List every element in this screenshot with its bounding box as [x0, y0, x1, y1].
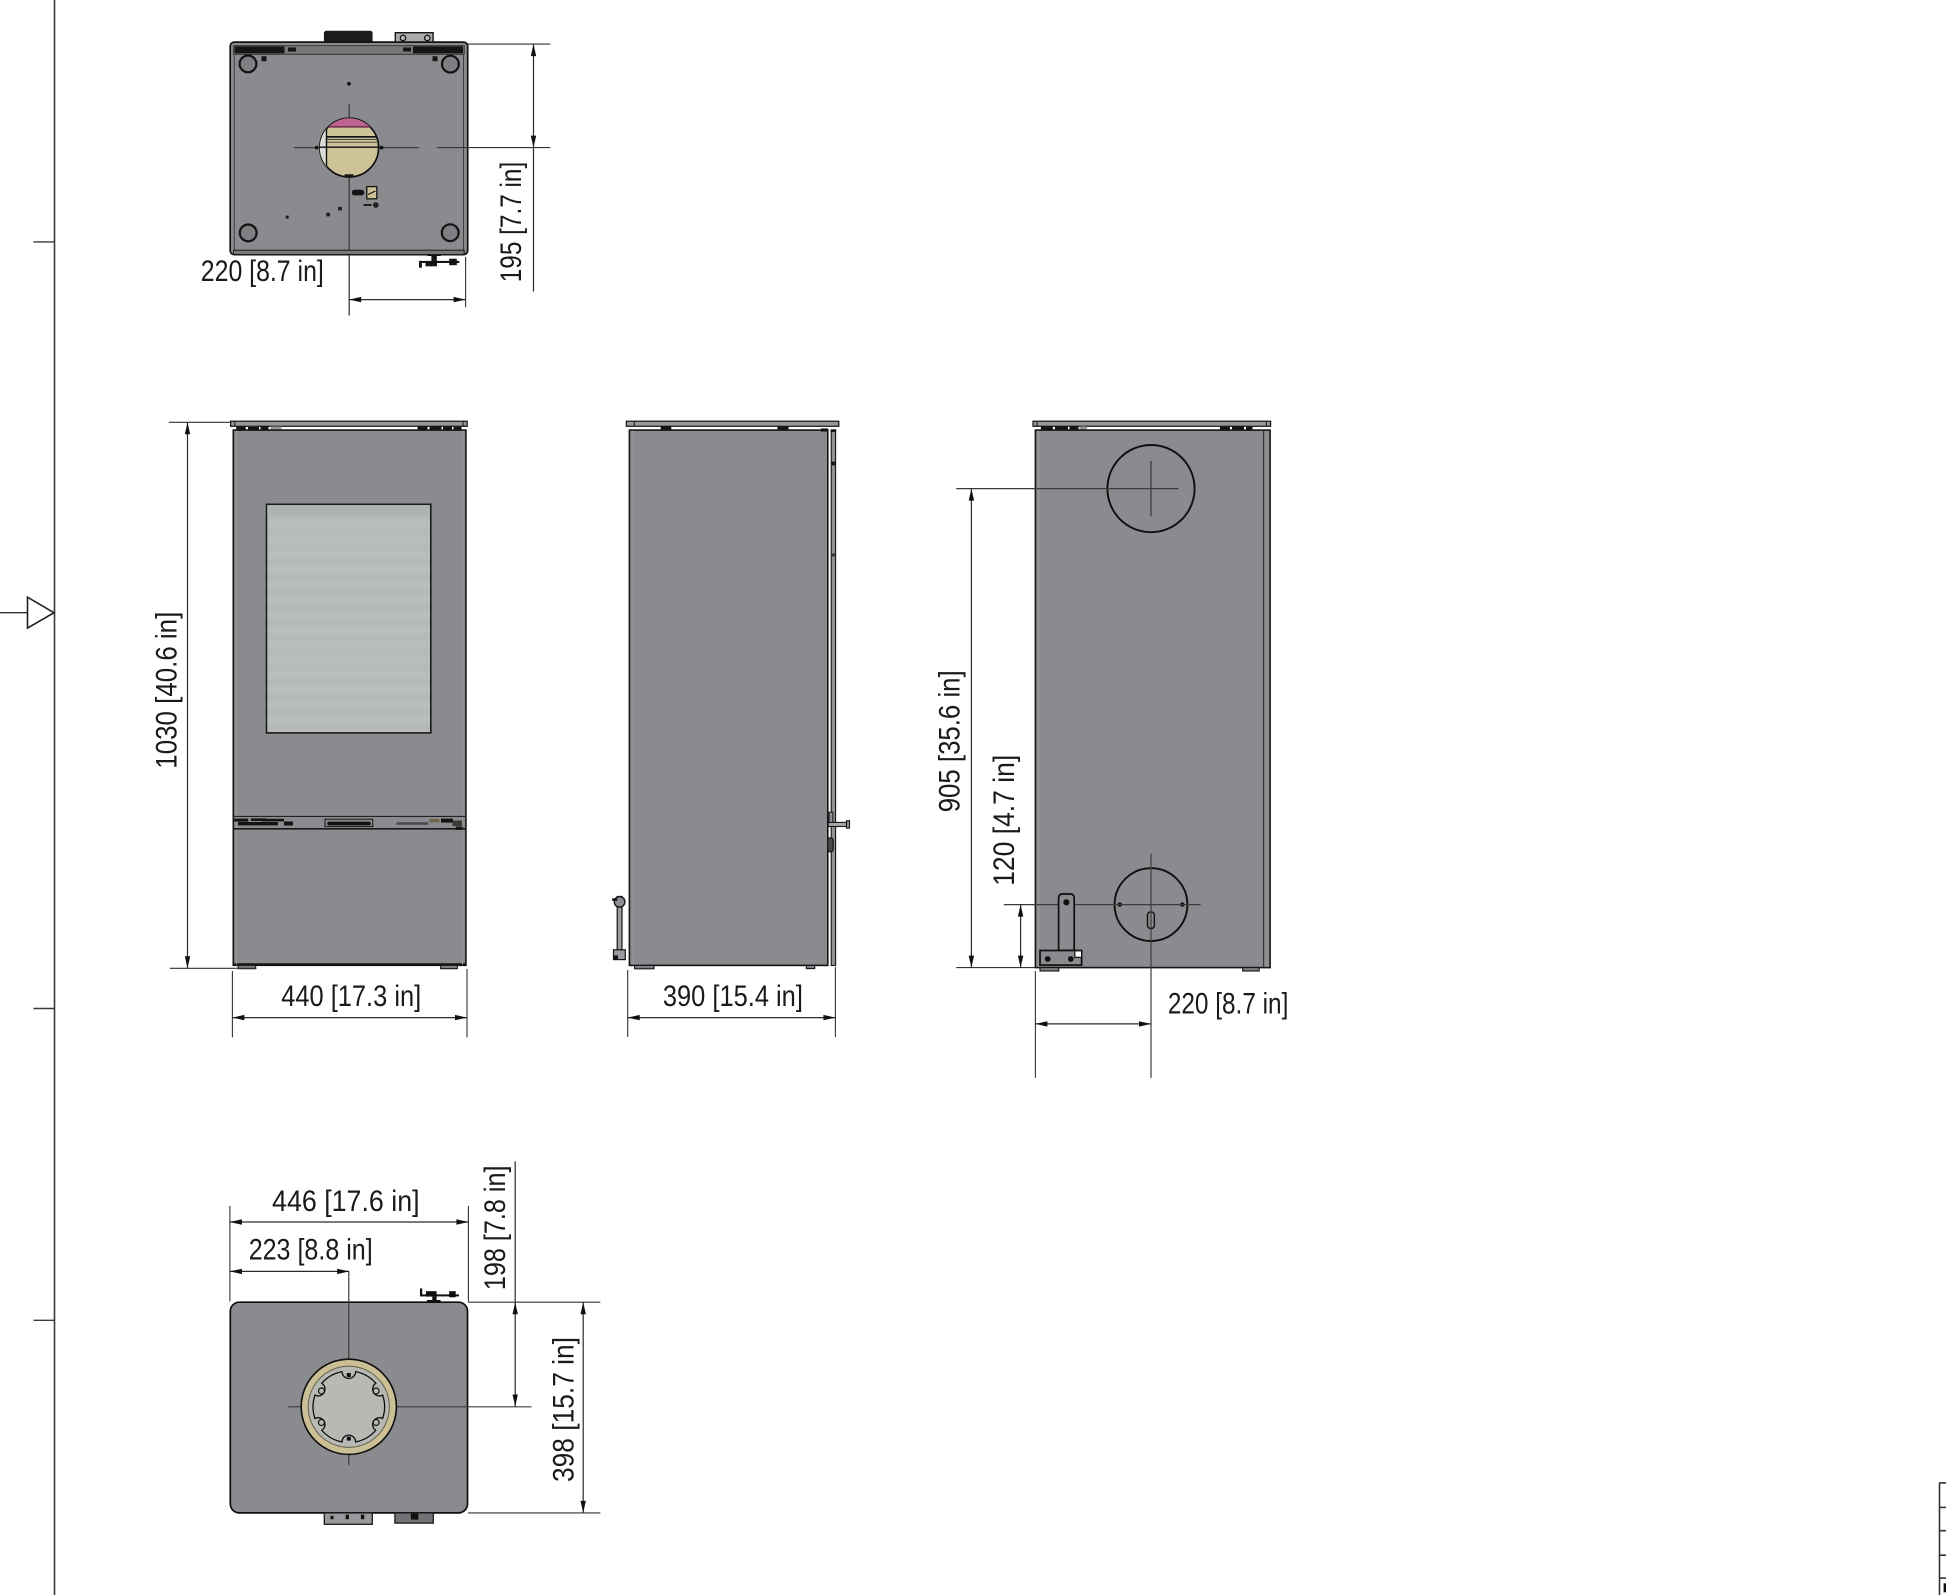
- svg-text:446 [17.6 in]: 446 [17.6 in]: [272, 1185, 420, 1218]
- svg-text:1030 [40.6 in]: 1030 [40.6 in]: [150, 612, 183, 769]
- svg-text:195 [7.7 in]: 195 [7.7 in]: [495, 162, 528, 283]
- svg-text:198 [7.8 in]: 198 [7.8 in]: [479, 1166, 512, 1291]
- svg-text:220 [8.7 in]: 220 [8.7 in]: [1168, 988, 1289, 1021]
- svg-text:223 [8.8 in]: 223 [8.8 in]: [249, 1234, 373, 1267]
- svg-text:120 [4.7 in]: 120 [4.7 in]: [988, 755, 1021, 886]
- svg-text:905 [35.6 in]: 905 [35.6 in]: [934, 670, 967, 812]
- svg-text:220 [8.7 in]: 220 [8.7 in]: [201, 255, 324, 288]
- svg-text:390 [15.4 in]: 390 [15.4 in]: [663, 980, 803, 1013]
- svg-text:440 [17.3 in]: 440 [17.3 in]: [281, 980, 421, 1013]
- svg-text:398 [15.7 in]: 398 [15.7 in]: [547, 1337, 580, 1482]
